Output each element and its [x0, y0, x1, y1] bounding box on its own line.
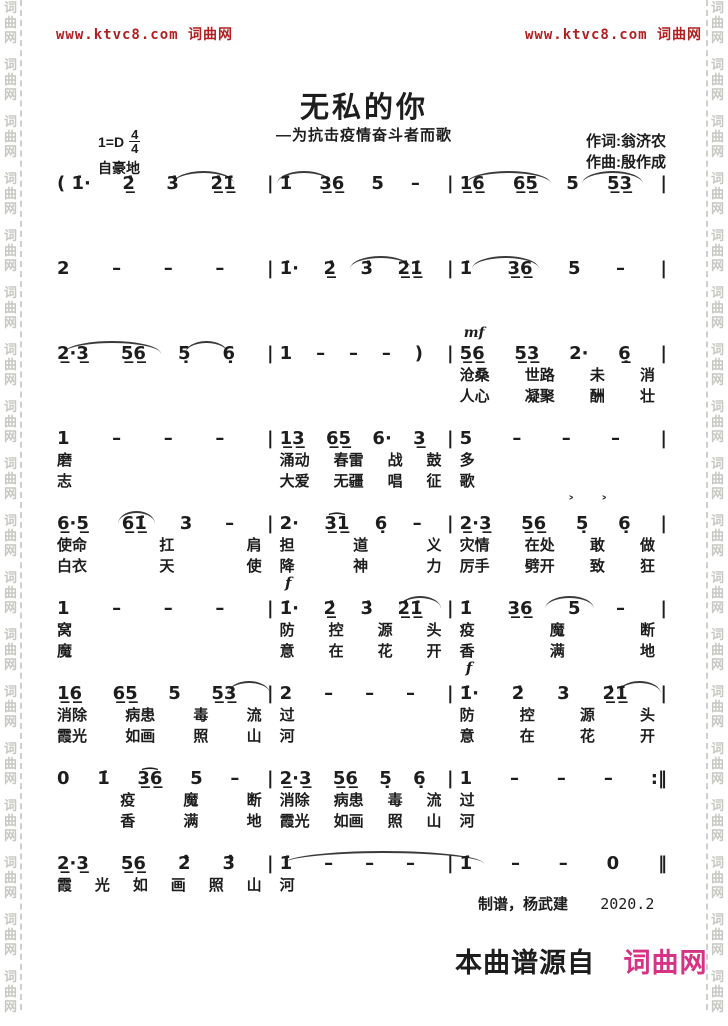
- note-line: 2̲·3̲5̲6̲5̣6̣|: [460, 510, 667, 534]
- note-token: 6̲1̲̇: [122, 513, 147, 534]
- note-line: 1–––)|: [280, 340, 454, 364]
- lyric-token: 控: [329, 619, 344, 640]
- note-line: ( 1̇·2̲̇3̇2̲̇1̲̇|: [57, 170, 274, 194]
- note-token: 5: [168, 683, 181, 704]
- watermark-text: 词曲网: [709, 513, 726, 558]
- lyric-token: 照: [209, 874, 224, 895]
- note-token: 5̣: [178, 343, 191, 364]
- note-token: |: [660, 598, 667, 619]
- note-token: 1̇·: [460, 683, 479, 704]
- lyric-token: 画: [171, 874, 186, 895]
- note-line: 2–––|: [57, 255, 274, 279]
- source-brand-link[interactable]: 词曲网: [624, 948, 708, 978]
- lyric-token: 满: [550, 640, 565, 661]
- measure: 1̇–––|河: [280, 850, 460, 916]
- lyric-line: 香满地: [57, 810, 274, 831]
- note-token: 3̲6̲: [508, 598, 533, 619]
- note-token: 3̇: [360, 598, 373, 619]
- lyric-token: 魔: [550, 619, 565, 640]
- notes-row: 1–––|窝魔1̇·2̲̇3̇2̲̇1̲̇|防控源头意在花开1̇3̲6̲5–|疫…: [57, 595, 667, 661]
- lyric-line: [57, 279, 274, 300]
- score-system: 2̲·3̲5̲6̲5̣6̣|1–––)|mf5̲6̲5̲3̲2·6̲̣|沧桑世路…: [57, 340, 667, 425]
- watermark-text: 词曲网: [709, 912, 726, 957]
- note-token: |: [447, 513, 454, 534]
- note-token: 1: [280, 343, 293, 364]
- lyric-token: 酬: [590, 385, 605, 406]
- lyric-token: 断: [640, 619, 655, 640]
- note-token: 2̇: [512, 683, 525, 704]
- lyric-token: 世路: [525, 364, 555, 385]
- note-token: 1: [57, 428, 70, 449]
- lyric-token: 如: [133, 874, 148, 895]
- note-token: 1̇: [460, 598, 473, 619]
- note-token: 3̲͡1̲: [324, 513, 349, 534]
- lyric-line: 疫魔断: [460, 619, 667, 640]
- note-line: 2·3̲͡1̲6̣–|: [280, 510, 454, 534]
- measure: 1̇3̲6̲5–|: [460, 255, 667, 321]
- note-line: 2̲·3̲5̲6̲2̇̂3̇̂|: [57, 850, 274, 874]
- note-token: –: [604, 768, 613, 789]
- lyric-line: 人心凝聚酬壮: [460, 385, 667, 406]
- lyric-token: 狂: [640, 555, 655, 576]
- note-token: 3: [557, 683, 570, 704]
- watermark-text: 词曲网: [709, 741, 726, 786]
- measure: 1̇3̲6̲5–|: [280, 170, 460, 236]
- lyric-token: 头: [640, 704, 655, 725]
- note-token: 6̲5̲: [326, 428, 351, 449]
- lyric-line: 霞光如画照山: [57, 874, 274, 895]
- note-token: 6̣: [413, 768, 426, 789]
- lyric-line: 厉手劈开致狂: [460, 555, 667, 576]
- note-token: 5̲3̲: [211, 683, 236, 704]
- lyric-token: 意: [280, 640, 295, 661]
- note-token: 5: [190, 768, 203, 789]
- note-token: –: [512, 428, 521, 449]
- dynamic-marking: ˃˃: [568, 495, 634, 511]
- watermark-text: 词曲网: [2, 456, 19, 501]
- note-token: –: [406, 683, 415, 704]
- lyric-token: 香: [460, 640, 475, 661]
- lyric-token: [57, 810, 72, 831]
- lyric-token: 春雷: [334, 449, 364, 470]
- note-token: |: [267, 513, 274, 534]
- lyric-token: 过: [280, 704, 295, 725]
- note-line: 2̲·3̲5̲6̲5̣6̣|: [280, 765, 454, 789]
- note-token: |: [660, 683, 667, 704]
- note-line: 2̲·3̲5̲6̲5̣6̣|: [57, 340, 274, 364]
- note-token: 2̲·3̲: [280, 768, 312, 789]
- lyric-token: 开: [427, 640, 442, 661]
- note-token: 6̲5̲: [113, 683, 138, 704]
- measure: 1̇3̲6̲5–|疫魔断香满地f: [460, 595, 667, 661]
- note-line: 6̲·5̲6̲1̲̇3–|: [57, 510, 274, 534]
- lyric-line: 防控源头: [280, 619, 454, 640]
- notes-row: 6̲·5̲6̲1̲̇3–|使命扛肩白衣天使2·3̲͡1̲6̣–|担道义降神力f˃…: [57, 510, 667, 576]
- measure: ( 1̇·2̲̇3̇2̲̇1̲̇|: [57, 170, 280, 236]
- lyric-token: 疫: [460, 619, 475, 640]
- note-line: 1–––|: [57, 595, 274, 619]
- note-token: –: [616, 258, 625, 279]
- lyric-token: 使: [247, 555, 262, 576]
- note-token: –: [413, 513, 422, 534]
- measure: 2̲·3̲5̲6̲5̣6̣|消除病患毒流霞光如画照山: [280, 765, 460, 831]
- lyric-line: 多: [460, 449, 667, 470]
- lyric-token: 毒: [193, 704, 208, 725]
- watermark-text: 词曲网: [2, 855, 19, 900]
- watermark-text: 词曲网: [709, 171, 726, 216]
- note-line: 1̇–––|: [280, 850, 454, 874]
- key-label: 1=D: [98, 134, 124, 150]
- lyric-token: 山: [247, 725, 262, 746]
- note-token: |: [660, 343, 667, 364]
- note-token: 3: [180, 513, 193, 534]
- note-line: 1̇3̲6̲5–|: [460, 595, 667, 619]
- note-token: ‖: [658, 853, 667, 874]
- watermark-text: 词曲网: [2, 513, 19, 558]
- note-token: 1̲3̲: [280, 428, 305, 449]
- lyric-token: 肩: [247, 534, 262, 555]
- note-token: –: [230, 768, 239, 789]
- watermark-text: 词曲网: [2, 912, 19, 957]
- note-token: –: [225, 513, 234, 534]
- lyric-line: 防控源头: [460, 704, 667, 725]
- note-token: 2̲·3̲: [57, 343, 89, 364]
- note-token: 5: [566, 173, 579, 194]
- lyric-token: 神: [353, 555, 368, 576]
- lyric-token: 多: [460, 449, 475, 470]
- lyric-token: 消除: [57, 704, 87, 725]
- watermark-text: 词曲网: [709, 456, 726, 501]
- notation-date: 2020.2: [600, 895, 654, 913]
- note-token: ( 1̇·: [57, 173, 91, 194]
- lyric-token: 开: [640, 725, 655, 746]
- note-token: –: [164, 428, 173, 449]
- note-token: 5: [568, 258, 581, 279]
- watermark-text: 词曲网: [709, 798, 726, 843]
- note-token: ): [415, 343, 423, 364]
- measure: 2–––|过河: [280, 680, 460, 746]
- lyric-token: 在: [520, 725, 535, 746]
- lyric-token: 未: [590, 364, 605, 385]
- lyric-line: [280, 300, 454, 321]
- lyric-token: 山: [427, 810, 442, 831]
- lyric-token: 劈开: [525, 555, 555, 576]
- note-token: 5̲6̲: [460, 343, 485, 364]
- note-line: 1–––:‖: [460, 765, 667, 789]
- lyric-token: 源: [580, 704, 595, 725]
- site-url-top-right[interactable]: www.ktvc8.com 词曲网: [525, 24, 702, 44]
- note-token: |: [447, 343, 454, 364]
- watermark-text: 词曲网: [709, 684, 726, 729]
- watermark-text: 词曲网: [709, 228, 726, 273]
- lyric-line: 担道义: [280, 534, 454, 555]
- watermark-text: 词曲网: [2, 570, 19, 615]
- lyric-line: 沧桑世路未消: [460, 364, 667, 385]
- lyric-token: 香: [120, 810, 135, 831]
- note-token: 5̣: [379, 768, 392, 789]
- lyric-line: [280, 895, 454, 916]
- note-line: 5̲6̲5̲3̲2·6̲̣|: [460, 340, 667, 364]
- note-token: 3̲: [413, 428, 426, 449]
- note-line: 2–––|: [280, 680, 454, 704]
- source-prefix: 本曲谱源自: [455, 948, 595, 978]
- measure: 1̇·2̲̇3̇2̲̇1̲̇|防控源头意在花开: [280, 595, 460, 661]
- watermark-text: 词曲网: [709, 855, 726, 900]
- note-token: –: [215, 428, 224, 449]
- lyric-line: 降神力: [280, 555, 454, 576]
- lyric-token: 照: [388, 810, 403, 831]
- time-signature-denominator: 4: [129, 142, 140, 155]
- note-token: 2̲̇1̲̇: [397, 258, 422, 279]
- lyric-line: 疫魔断: [57, 789, 274, 810]
- note-token: 5̲6̲: [333, 768, 358, 789]
- lyric-token: 致: [590, 555, 605, 576]
- lyric-token: [57, 789, 72, 810]
- note-token: 3̲6̲: [508, 258, 533, 279]
- lyric-token: 如画: [334, 810, 364, 831]
- note-token: |: [267, 598, 274, 619]
- note-token: 3̇̂: [222, 853, 235, 874]
- song-title: 无私的你: [0, 84, 728, 126]
- note-token: 3̇: [360, 258, 373, 279]
- score-system: 1–––|窝魔1̇·2̲̇3̇2̲̇1̲̇|防控源头意在花开1̇3̲6̲5–|疫…: [57, 595, 667, 680]
- note-token: 1̇: [280, 853, 293, 874]
- score-system: 1̲6̲6̲5̲55̲3̲|消除病患毒流霞光如画照山2–––|过河1̇·2̇32…: [57, 680, 667, 765]
- note-token: –: [511, 853, 520, 874]
- lyric-line: 大爱无疆唱征: [280, 470, 454, 491]
- watermark-text: 词曲网: [2, 0, 19, 45]
- measure: 1̲3̲6̲5̲6·3̲|涌动春雷战鼓大爱无疆唱征: [280, 425, 460, 491]
- measure: 6̲·5̲6̲1̲̇3–|使命扛肩白衣天使: [57, 510, 280, 576]
- lyric-token: 消: [640, 364, 655, 385]
- measure: 1̇·2̲̇3̇2̲̇1̲̇|: [280, 255, 460, 321]
- lyric-line: [57, 300, 274, 321]
- lyric-line: 意在花开: [280, 640, 454, 661]
- note-token: 1̇: [97, 768, 110, 789]
- lyric-line: 窝: [57, 619, 274, 640]
- lyric-token: 源: [378, 619, 393, 640]
- note-token: 5: [371, 173, 384, 194]
- note-line: 1̲6̲6̲5̲55̲3̲|: [57, 680, 274, 704]
- lyric-line: [280, 385, 454, 406]
- lyric-token: 山: [247, 874, 262, 895]
- lyric-token: 厉手: [460, 555, 490, 576]
- lyric-line: [460, 194, 667, 215]
- notes-row: ( 1̇·2̲̇3̇2̲̇1̲̇|1̇3̲6̲5–|1̲6̲6̲5̲55̲3̲|: [57, 170, 667, 236]
- lyric-token: 照: [193, 725, 208, 746]
- note-token: 1̲6̲: [57, 683, 82, 704]
- lyric-token: 志: [57, 470, 72, 491]
- lyric-token: 疫: [120, 789, 135, 810]
- notes-row: 1̲6̲6̲5̲55̲3̲|消除病患毒流霞光如画照山2–––|过河1̇·2̇32…: [57, 680, 667, 746]
- dynamic-marking: mf: [464, 325, 485, 341]
- lyric-token: 控: [520, 704, 535, 725]
- lyric-line: 河: [280, 725, 454, 746]
- note-token: –: [559, 853, 568, 874]
- measure: 2·3̲͡1̲6̣–|担道义降神力f: [280, 510, 460, 576]
- note-token: 2: [280, 683, 293, 704]
- note-token: –: [164, 598, 173, 619]
- measure: 5–––|多歌: [460, 425, 667, 491]
- lyric-token: 病患: [334, 789, 364, 810]
- note-token: 2̇̂: [178, 853, 191, 874]
- note-token: –: [411, 173, 420, 194]
- measure: 1–––|窝魔: [57, 595, 280, 661]
- note-token: –: [215, 598, 224, 619]
- note-token: |: [447, 173, 454, 194]
- lyric-line: [460, 300, 667, 321]
- note-line: 1̇·2̲̇3̇2̲̇1̲̇|: [280, 255, 454, 279]
- lyric-token: 过: [460, 789, 475, 810]
- lyric-token: 天: [159, 555, 174, 576]
- measure: 1̲6̲6̲5̲55̲3̲|消除病患毒流霞光如画照山: [57, 680, 280, 746]
- watermark-text: 词曲网: [709, 627, 726, 672]
- note-token: |: [267, 853, 274, 874]
- note-token: :‖: [651, 768, 667, 789]
- credits-block: 作词:翁济农 作曲:殷作成: [586, 131, 666, 173]
- note-line: 1̇––0‖: [460, 850, 667, 874]
- lyric-line: 意在花开: [460, 725, 667, 746]
- note-token: |: [267, 258, 274, 279]
- lyric-token: 断: [247, 789, 262, 810]
- lyric-line: [460, 215, 667, 236]
- watermark-text: 词曲网: [709, 570, 726, 615]
- lyric-token: 河: [280, 874, 295, 895]
- note-token: 2̲̇1̲̇: [603, 683, 628, 704]
- note-token: –: [611, 428, 620, 449]
- lyric-token: 义: [427, 534, 442, 555]
- note-token: 5̲6̲: [121, 343, 146, 364]
- lyric-token: 地: [640, 640, 655, 661]
- note-token: 2̲·3̲: [57, 853, 89, 874]
- measure: 2̲·3̲5̲6̲2̇̂3̇̂|霞光如画照山: [57, 850, 280, 916]
- note-token: 2·: [280, 513, 299, 534]
- note-token: 2·: [569, 343, 588, 364]
- note-line: 1̇3̲6̲5–|: [460, 255, 667, 279]
- note-token: –: [616, 598, 625, 619]
- lyric-token: 大爱: [280, 470, 310, 491]
- time-signature-numerator: 4: [129, 128, 140, 142]
- lyric-token: 战: [388, 449, 403, 470]
- note-token: –: [324, 683, 333, 704]
- note-token: 3̲͡6̲: [137, 768, 162, 789]
- lyric-line: [280, 215, 454, 236]
- note-token: 2̲̇: [323, 258, 336, 279]
- lyric-token: 如画: [125, 725, 155, 746]
- notes-row: 2–––|1̇·2̲̇3̇2̲̇1̲̇|1̇3̲6̲5–|: [57, 255, 667, 321]
- lyric-token: 使命: [57, 534, 87, 555]
- lyricist-credit: 作词:翁济农: [586, 131, 666, 152]
- measure: 2̲·3̲5̲6̲5̣6̣|: [57, 340, 280, 406]
- lyric-line: [57, 895, 274, 916]
- note-token: –: [382, 343, 391, 364]
- note-token: 2̲̇: [122, 173, 135, 194]
- watermark-text: 词曲网: [2, 684, 19, 729]
- lyric-line: 霞光如画照山: [280, 810, 454, 831]
- lyric-line: [57, 194, 274, 215]
- measure: 2–––|: [57, 255, 280, 321]
- note-token: 5̲6̲: [521, 513, 546, 534]
- lyric-token: 降: [280, 555, 295, 576]
- lyric-line: 涌动春雷战鼓: [280, 449, 454, 470]
- dynamic-marking: f: [285, 574, 291, 592]
- lyric-token: 花: [378, 640, 393, 661]
- lyric-token: 意: [460, 725, 475, 746]
- source-attribution: 本曲谱源自 词曲网: [455, 941, 708, 980]
- note-token: 6̲·5̲: [57, 513, 89, 534]
- note-token: 2̲·3̲: [460, 513, 492, 534]
- note-token: |: [660, 428, 667, 449]
- lyric-token: 地: [247, 810, 262, 831]
- note-token: |: [447, 768, 454, 789]
- note-token: –: [510, 768, 519, 789]
- site-url-top-left[interactable]: www.ktvc8.com 词曲网: [56, 24, 233, 44]
- score-system: ( 1̇·2̲̇3̇2̲̇1̲̇|1̇3̲6̲5–|1̲6̲6̲5̲55̲3̲|: [57, 170, 667, 255]
- lyric-line: 歌: [460, 470, 667, 491]
- lyric-token: 扛: [159, 534, 174, 555]
- lyric-token: 防: [280, 619, 295, 640]
- watermark-text: 词曲网: [2, 285, 19, 330]
- lyric-line: 消除病患毒流: [57, 704, 274, 725]
- note-token: |: [447, 598, 454, 619]
- lyric-line: 香满地: [460, 640, 667, 661]
- lyric-token: 灾情: [460, 534, 490, 555]
- lyric-token: 无疆: [334, 470, 364, 491]
- note-line: 1̇·2̲̇3̇2̲̇1̲̇|: [280, 595, 454, 619]
- lyric-line: 霞光如画照山: [57, 725, 274, 746]
- lyric-token: 防: [460, 704, 475, 725]
- note-token: 2̲̇: [323, 598, 336, 619]
- note-token: |: [660, 258, 667, 279]
- lyric-line: 志: [57, 470, 274, 491]
- note-token: –: [215, 258, 224, 279]
- watermark-text: 词曲网: [709, 399, 726, 444]
- watermark-text: 词曲网: [709, 285, 726, 330]
- note-token: |: [267, 683, 274, 704]
- lyric-token: 在: [329, 640, 344, 661]
- note-token: |: [447, 428, 454, 449]
- watermark-text: 词曲网: [2, 969, 19, 1014]
- notes-row: 1–––|磨志1̲3̲6̲5̲6·3̲|涌动春雷战鼓大爱无疆唱征5–––|多歌: [57, 425, 667, 491]
- lyric-token: 河: [280, 725, 295, 746]
- watermark-text: 词曲网: [709, 0, 726, 45]
- note-token: 1̲6̲: [460, 173, 485, 194]
- lyric-token: 担: [280, 534, 295, 555]
- lyric-line: [460, 279, 667, 300]
- note-token: 5̣: [576, 513, 589, 534]
- note-token: –: [557, 768, 566, 789]
- lyric-token: 流: [427, 789, 442, 810]
- note-token: –: [562, 428, 571, 449]
- lyric-token: 魔: [183, 789, 198, 810]
- score-system: 2–––|1̇·2̲̇3̇2̲̇1̲̇|1̇3̲6̲5–|: [57, 255, 667, 340]
- note-token: 1̇·: [280, 598, 299, 619]
- lyric-token: 河: [460, 810, 475, 831]
- lyric-token: 做: [640, 534, 655, 555]
- note-token: 2̲̇1̲̇: [210, 173, 235, 194]
- lyric-token: 花: [580, 725, 595, 746]
- note-line: 1̲3̲6̲5̲6·3̲|: [280, 425, 454, 449]
- lyric-token: 满: [183, 810, 198, 831]
- lyric-token: 歌: [460, 470, 475, 491]
- note-token: 5̲6̲: [121, 853, 146, 874]
- watermark-text: 词曲网: [2, 342, 19, 387]
- note-token: 1̇: [460, 258, 473, 279]
- measure: 1–––)|: [280, 340, 460, 406]
- right-dashed-divider: [706, 0, 708, 1010]
- lyric-line: 过: [280, 704, 454, 725]
- left-watermark-column: 词曲网词曲网词曲网词曲网词曲网词曲网词曲网词曲网词曲网词曲网词曲网词曲网词曲网词…: [2, 0, 19, 1026]
